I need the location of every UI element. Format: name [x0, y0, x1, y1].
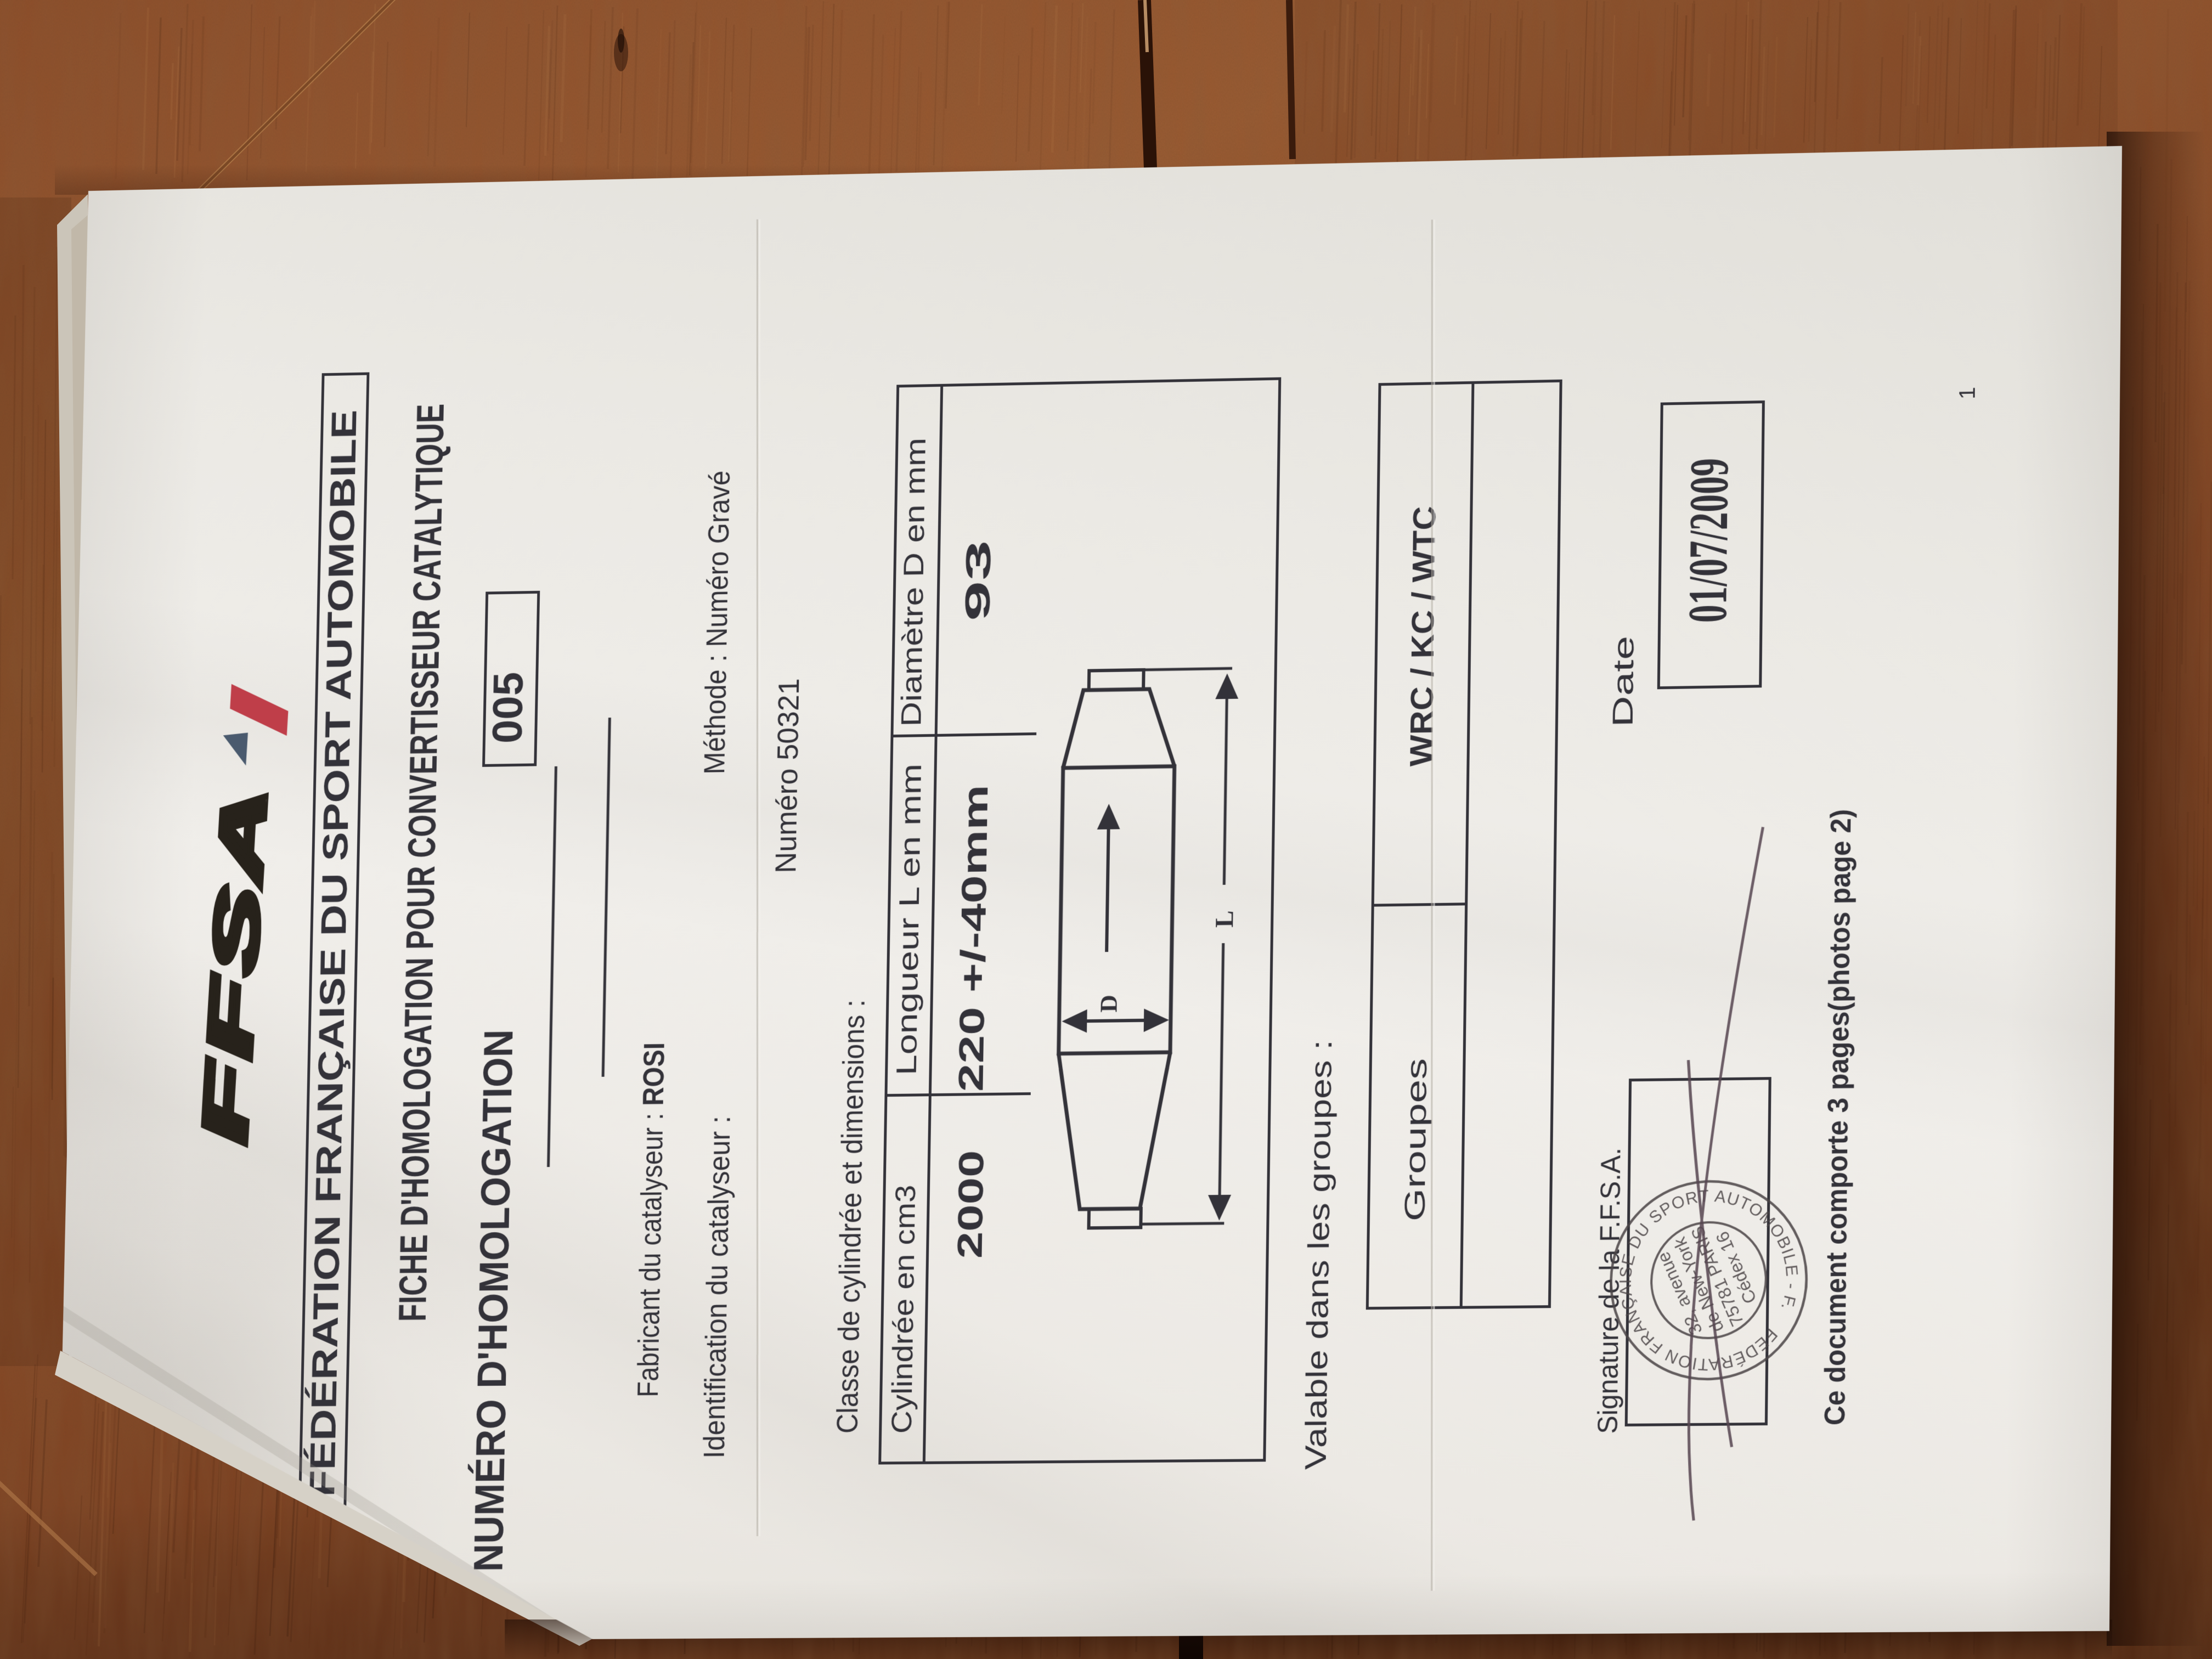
svg-text:D: D: [1096, 995, 1122, 1013]
svg-text:L: L: [1211, 910, 1239, 928]
